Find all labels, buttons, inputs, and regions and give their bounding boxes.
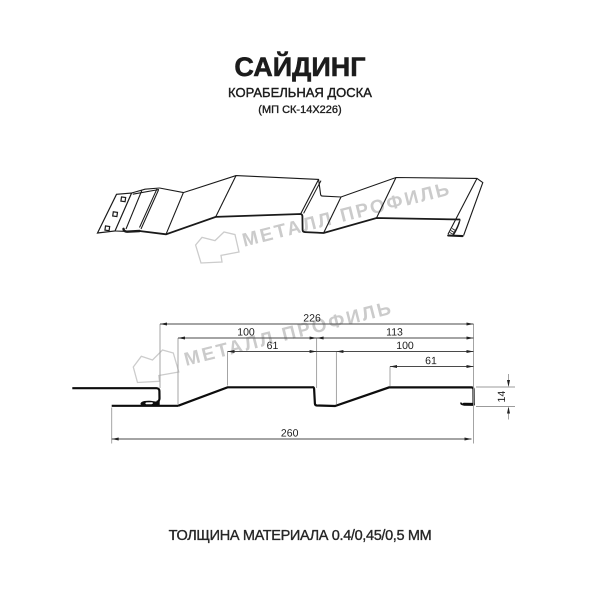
svg-text:226: 226 xyxy=(303,313,321,325)
svg-text:61: 61 xyxy=(425,355,437,367)
svg-text:100: 100 xyxy=(396,340,414,352)
svg-text:100: 100 xyxy=(237,326,255,338)
svg-text:113: 113 xyxy=(386,327,403,339)
svg-text:61: 61 xyxy=(267,340,279,352)
svg-text:МЕТАЛЛ ПРОФИЛЬ: МЕТАЛЛ ПРОФИЛЬ xyxy=(182,298,395,371)
svg-text:14: 14 xyxy=(496,391,508,403)
svg-text:260: 260 xyxy=(281,427,299,439)
